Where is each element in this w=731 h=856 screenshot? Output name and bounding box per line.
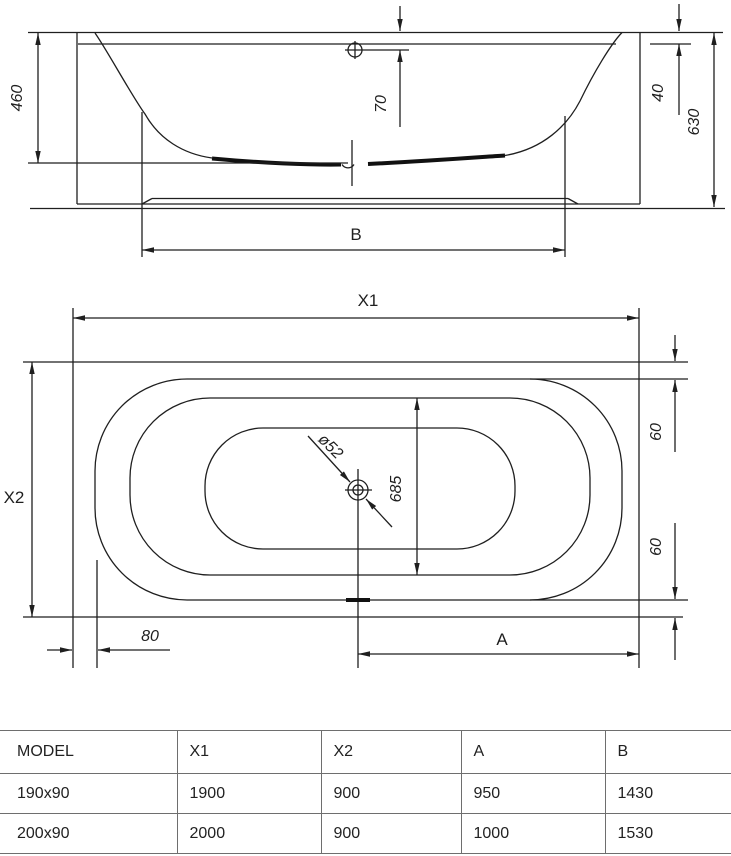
- dim-offset-80: 80: [47, 628, 170, 650]
- rim-extension-lines: [530, 379, 688, 600]
- cell-b: 1430: [605, 774, 731, 814]
- side-elevation-view: 460 70 40 630 B: [9, 4, 725, 257]
- interior-left-slope: [95, 33, 212, 158]
- col-header-a: A: [461, 731, 605, 774]
- dim-label-70: 70: [373, 95, 390, 113]
- dim-rim-60-top: 60: [648, 335, 675, 452]
- col-header-model: MODEL: [0, 731, 177, 774]
- dim-label-60-top: 60: [648, 423, 665, 441]
- dim-label-40: 40: [650, 84, 667, 102]
- dim-a: A: [358, 630, 639, 654]
- table-header-row: MODEL X1 X2 A B: [0, 731, 731, 774]
- cell-model: 190x90: [0, 774, 177, 814]
- skirt-line: [142, 199, 578, 205]
- dim-x1: X1: [73, 291, 639, 318]
- cell-b: 1530: [605, 814, 731, 854]
- dim-rim-40: 40: [650, 4, 679, 115]
- spec-table: MODEL X1 X2 A B 190x90 1900 900 950 1430…: [0, 730, 731, 854]
- interior-bottom-right: [368, 156, 505, 165]
- drain-symbol: [345, 469, 372, 668]
- dim-drain-52: ø52: [308, 431, 392, 527]
- interior-bottom-left: [212, 159, 341, 165]
- cell-x2: 900: [321, 814, 461, 854]
- dim-bottom-b: B: [142, 112, 565, 257]
- dim-x2: X2: [4, 362, 32, 617]
- dim-overflow-70: 70: [373, 6, 400, 127]
- dim-depth-460: 460: [9, 33, 348, 163]
- table-row: 190x90 1900 900 950 1430: [0, 774, 731, 814]
- table-row: 200x90 2000 900 1000 1530: [0, 814, 731, 854]
- floor-contour: [205, 428, 515, 549]
- col-header-x1: X1: [177, 731, 321, 774]
- cell-a: 950: [461, 774, 605, 814]
- cell-model: 200x90: [0, 814, 177, 854]
- dim-label-460: 460: [9, 85, 26, 112]
- cell-x2: 900: [321, 774, 461, 814]
- dim-label-x2: X2: [4, 488, 25, 507]
- cell-x1: 1900: [177, 774, 321, 814]
- technical-drawing: 460 70 40 630 B: [0, 0, 731, 725]
- col-header-b: B: [605, 731, 731, 774]
- dim-label-630: 630: [686, 109, 703, 136]
- dim-label-b: B: [350, 225, 361, 244]
- dim-label-a: A: [496, 630, 508, 649]
- interior-right-slope: [505, 33, 622, 156]
- cell-a: 1000: [461, 814, 605, 854]
- dim-label-x1: X1: [358, 291, 379, 310]
- dim-label-60-bottom: 60: [648, 538, 665, 556]
- bathtub-spec-sheet: 460 70 40 630 B: [0, 0, 731, 856]
- dim-height-630: 630: [686, 33, 714, 207]
- dim-label-52: ø52: [314, 431, 346, 463]
- dim-label-685: 685: [388, 476, 405, 503]
- dim-label-80: 80: [141, 628, 159, 645]
- plan-view: ø52 X1 X2 685 60: [4, 291, 688, 668]
- col-header-x2: X2: [321, 731, 461, 774]
- dim-rim-60-bottom: 60: [648, 523, 675, 660]
- cell-x1: 2000: [177, 814, 321, 854]
